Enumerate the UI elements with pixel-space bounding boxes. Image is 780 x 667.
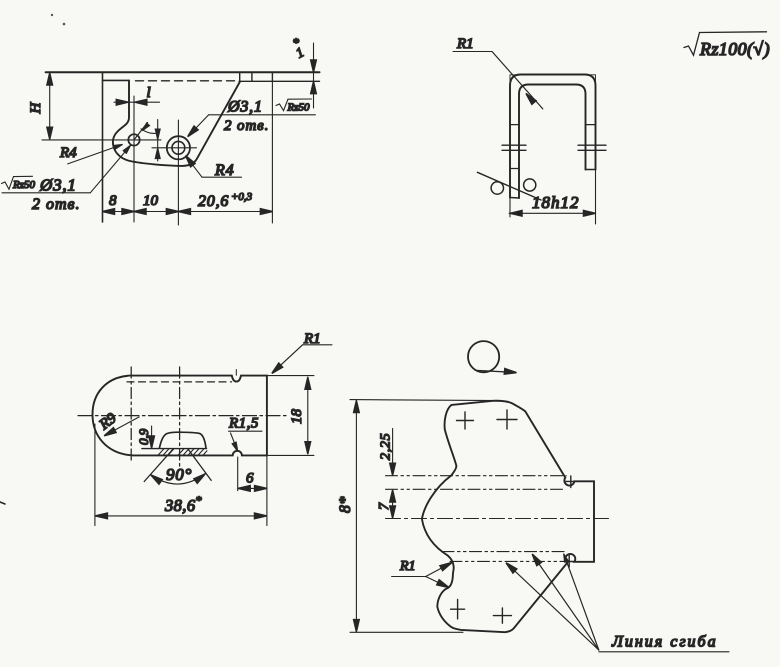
svg-text:18: 18 [289,409,305,425]
svg-text:R1,5: R1,5 [228,416,259,432]
svg-text:+0,3: +0,3 [231,191,253,203]
svg-text:6: 6 [246,471,254,487]
svg-text:Rz50: Rz50 [287,101,311,113]
svg-text:2,25: 2,25 [379,433,394,460]
svg-text:R4: R4 [214,162,234,179]
svg-text:*: * [293,35,300,50]
svg-text:Линия сгиба: Линия сгиба [611,634,718,651]
svg-text:*: * [196,493,202,507]
svg-text:20,6: 20,6 [198,193,229,210]
svg-text:8*: 8* [337,496,354,513]
svg-text:R4: R4 [59,145,77,161]
svg-text:R1: R1 [399,559,416,574]
svg-text:R9: R9 [96,410,120,434]
svg-text:38,6: 38,6 [164,496,196,515]
svg-text:Ø3,1: Ø3,1 [227,99,263,116]
svg-text:2 отв.: 2 отв. [224,118,269,134]
svg-text:18h12: 18h12 [532,193,580,212]
svg-text:R1: R1 [456,36,474,52]
svg-text:Ø3,1: Ø3,1 [39,176,77,195]
svg-text:10: 10 [143,193,159,209]
svg-text:8: 8 [109,193,117,209]
svg-text:7: 7 [377,502,392,510]
svg-text:Rz50: Rz50 [12,179,36,191]
svg-text:2 отв.: 2 отв. [32,196,81,213]
svg-text:H: H [28,102,44,115]
svg-text:0,9: 0,9 [136,428,151,445]
svg-text:Rz100(√): Rz100(√) [699,39,770,60]
svg-text:l: l [147,85,151,101]
svg-text:90°: 90° [166,465,192,484]
